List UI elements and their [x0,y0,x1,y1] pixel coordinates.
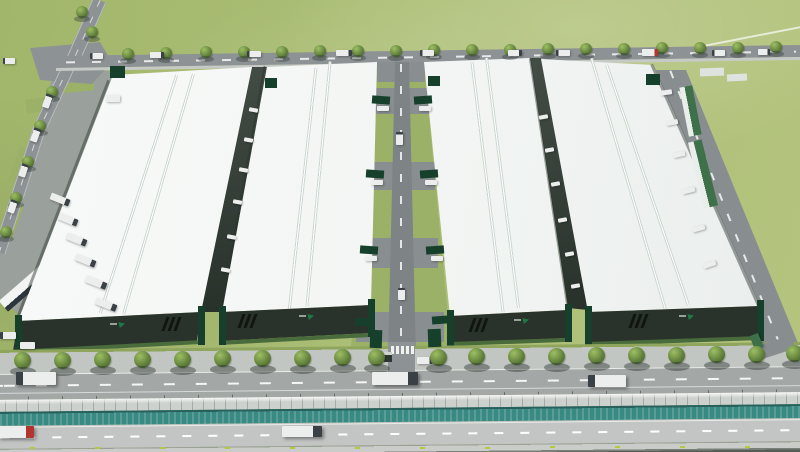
warehouse-4-stripe-marks [631,314,647,328]
warehouse-2-entrance-canopy [265,78,277,88]
industrial-park-aerial-rendering [0,0,800,452]
boulevard-tree [668,347,685,364]
back-road-truck [150,52,164,58]
main-road-truck [372,372,418,385]
warehouse-1-entrance-canopy [110,66,125,78]
roadside-tree [122,48,134,60]
roadside-tree [200,46,212,58]
parked-car [106,95,120,102]
concrete-pad [700,68,724,77]
central-road-dashes [400,64,402,356]
back-road-truck [758,49,770,55]
roadside-tree [732,42,744,54]
back-road-truck [712,50,725,56]
logo-text [514,319,521,321]
logo-text [299,315,306,317]
boulevard-tree [508,348,525,365]
boulevard-tree [134,351,151,368]
crosswalk-bar [401,346,404,354]
logo-bird-icon [688,312,698,320]
warehouse-4-corner-tower-left [585,306,592,347]
west-road-truck [3,58,15,64]
curb-marker [615,446,620,448]
back-road-truck-red [642,49,658,56]
crosswalk-bar [396,346,399,354]
warehouse-3-stripe-marks [471,318,487,332]
curb-marker [95,447,100,449]
outer-road-truck-red [0,426,34,438]
docked-truck [431,256,443,261]
curb-marker [550,446,555,448]
roadside-tree [770,41,782,53]
boulevard-tree [14,352,31,369]
docked-truck [365,256,377,261]
loading-dock [355,317,372,326]
warehouse-1-corner-tower-right [198,306,205,345]
boulevard-tree [94,351,111,368]
roadside-tree [314,45,326,57]
logo-text [679,315,686,317]
concrete-pad [727,73,747,81]
docked-truck [419,106,431,111]
gate-wing [428,329,442,347]
warehouse-3-corner-tower-left [447,310,454,348]
back-road-truck [336,50,352,56]
warehouse-1-logo [110,321,128,328]
logo-text [110,323,117,325]
roadside-tree [390,45,402,57]
warehouse-2-corner-tower-left [219,306,226,345]
curb-marker [160,447,165,449]
parked-truck [20,342,35,349]
warehouse-4-logo [679,313,697,320]
roadside-tree [0,226,12,238]
roadside-tree [618,43,630,55]
crosswalk-bar [411,346,414,354]
curb-marker [485,447,490,449]
central-road-truck [396,132,403,145]
main-road-truck [16,372,56,385]
warehouse-4-entrance-canopy [646,74,660,85]
back-road-truck [420,50,434,56]
roadside-tree [86,26,98,38]
warehouse-3-logo [514,317,532,324]
curb-marker [290,447,295,449]
boulevard-tree [628,347,645,364]
loading-dock [414,95,433,104]
main-road-truck [588,375,626,387]
boulevard-tree [588,347,605,364]
loading-dock [372,95,391,104]
warehouse-2-logo [299,312,317,319]
docked-truck [425,180,437,185]
curb-marker [420,447,425,449]
curb-marker [745,446,750,448]
loading-dock [360,245,379,254]
back-road-truck [508,50,522,56]
docked-truck [371,180,383,185]
back-road-truck [247,51,261,57]
boulevard-tree [334,349,351,366]
roadside-tree [352,45,364,57]
boulevard-tree [368,349,385,366]
loading-dock [426,245,445,254]
warehouse-3-corner-tower-right [565,304,572,342]
gate-wing [370,330,383,348]
boulevard-tree [174,351,191,368]
logo-bird-icon [118,320,128,328]
roadside-tree [694,42,706,54]
boulevard-tree [294,350,311,367]
curb-marker [355,447,360,449]
boulevard-tree [54,352,71,369]
central-road-truck [398,288,405,300]
boulevard-tree [708,346,725,363]
parked-truck [0,332,16,339]
docked-truck [377,106,389,111]
loading-dock [420,169,439,178]
loading-dock [366,169,385,178]
boulevard-tree [254,350,271,367]
warehouse-2-stripe-marks [240,314,256,328]
roadside-tree [542,43,554,55]
curb-marker [680,446,685,448]
boulevard-tree [748,346,765,363]
loading-dock [432,315,449,324]
boulevard-tree [430,349,447,366]
roadside-tree [580,43,592,55]
roadside-tree [466,44,478,56]
roadside-tree [76,6,88,18]
curb-marker [225,447,230,449]
boulevard-tree [548,348,565,365]
back-road-truck [556,50,570,56]
boulevard-tree [468,348,485,365]
warehouse-3-entrance-canopy [428,76,440,86]
boulevard-tree [786,345,800,362]
back-road-truck [90,53,103,59]
outer-road-truck [282,426,322,437]
warehouse-1-stripe-marks [164,317,180,331]
logo-bird-icon [308,312,318,320]
curb-marker [30,447,35,449]
roadside-tree [276,46,288,58]
boulevard-tree [214,350,231,367]
crosswalk-bar [406,346,409,354]
logo-bird-icon [522,316,532,324]
